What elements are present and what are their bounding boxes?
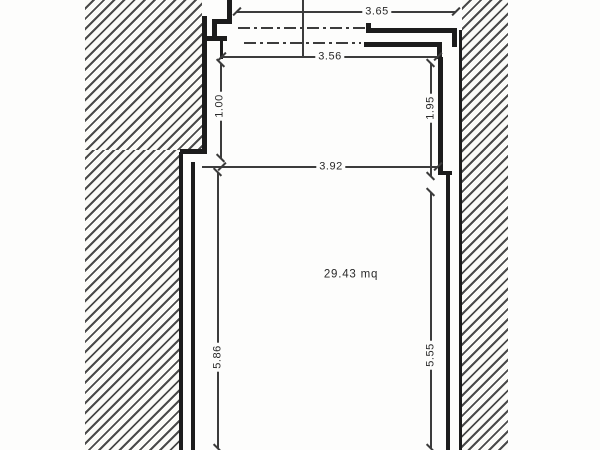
dimension-label-main-right-height: 5.55 [425,340,438,369]
dimension-line-main-right-height [430,192,432,448]
wall-left-step [180,149,207,154]
wall-top-right-inner [364,42,442,47]
wall-left-lower-outer [179,152,183,450]
wall-top-right-outer [366,28,457,33]
wall-right-outer [459,30,462,450]
wall-right-upper-inner [438,57,443,175]
dimension-label-main-left-height: 5.86 [212,342,225,371]
wall-top-right-corner [452,28,457,47]
dimension-label-upper-width: 3.56 [315,51,344,64]
extension-line-center [302,0,304,58]
dimension-label-top-width: 3.65 [362,6,391,19]
wall-top-left-step-c [207,36,227,41]
hatch-wall-right [462,0,508,450]
dimension-line-main-left-height [217,172,219,448]
dimension-label-upper-left-height: 1.00 [214,91,227,120]
dimension-label-upper-right-height: 1.95 [425,93,438,122]
floor-plan-canvas: 3.65 3.56 1.00 1.95 3.92 5.86 5.55 29.43… [0,0,600,450]
wall-right-lower-inner [446,171,450,450]
room-area-label: 29.43 mq [321,269,381,282]
wall-left-lower-inner [191,162,195,450]
dimension-label-main-width: 3.92 [316,161,345,174]
hatch-wall-left-lower [85,150,182,450]
hatch-wall-left-upper [85,0,202,153]
dimension-line-top-width [237,11,456,13]
